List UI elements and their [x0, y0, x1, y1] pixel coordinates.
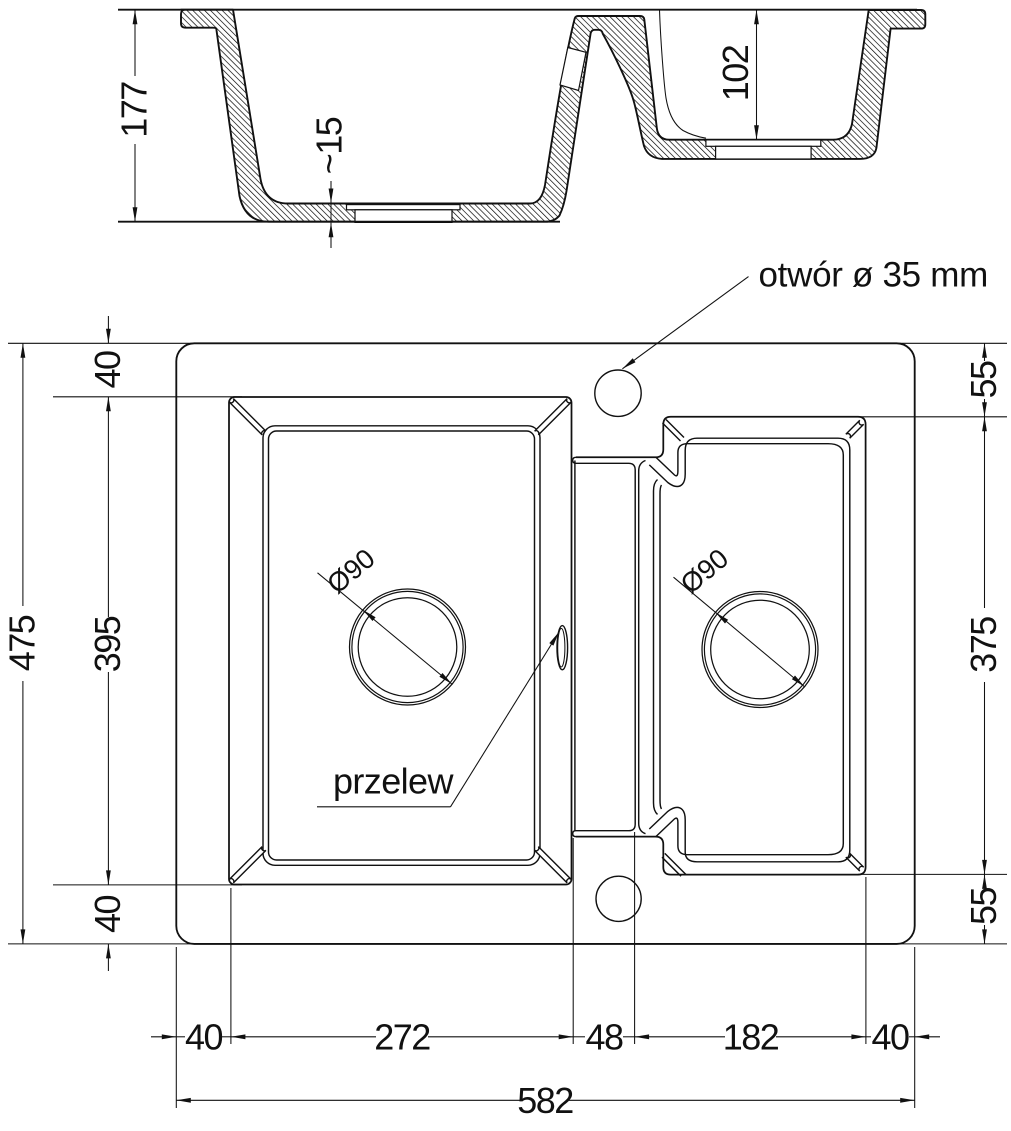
svg-text:48: 48	[585, 1016, 623, 1057]
svg-text:~15: ~15	[309, 117, 350, 174]
svg-text:177: 177	[114, 82, 155, 138]
svg-text:272: 272	[374, 1016, 430, 1057]
svg-text:40: 40	[185, 1016, 223, 1057]
svg-text:475: 475	[1, 615, 42, 671]
svg-text:przelew: przelew	[333, 761, 454, 802]
svg-text:40: 40	[87, 896, 128, 934]
svg-text:395: 395	[87, 616, 128, 672]
svg-text:55: 55	[963, 361, 1004, 399]
svg-text:182: 182	[723, 1016, 779, 1057]
svg-text:40: 40	[87, 351, 128, 389]
svg-text:102: 102	[715, 45, 756, 101]
svg-text:375: 375	[963, 617, 1004, 673]
svg-text:55: 55	[963, 888, 1004, 926]
svg-text:582: 582	[517, 1080, 573, 1121]
svg-text:otwór ø 35 mm: otwór ø 35 mm	[759, 256, 988, 295]
svg-text:40: 40	[871, 1016, 909, 1057]
